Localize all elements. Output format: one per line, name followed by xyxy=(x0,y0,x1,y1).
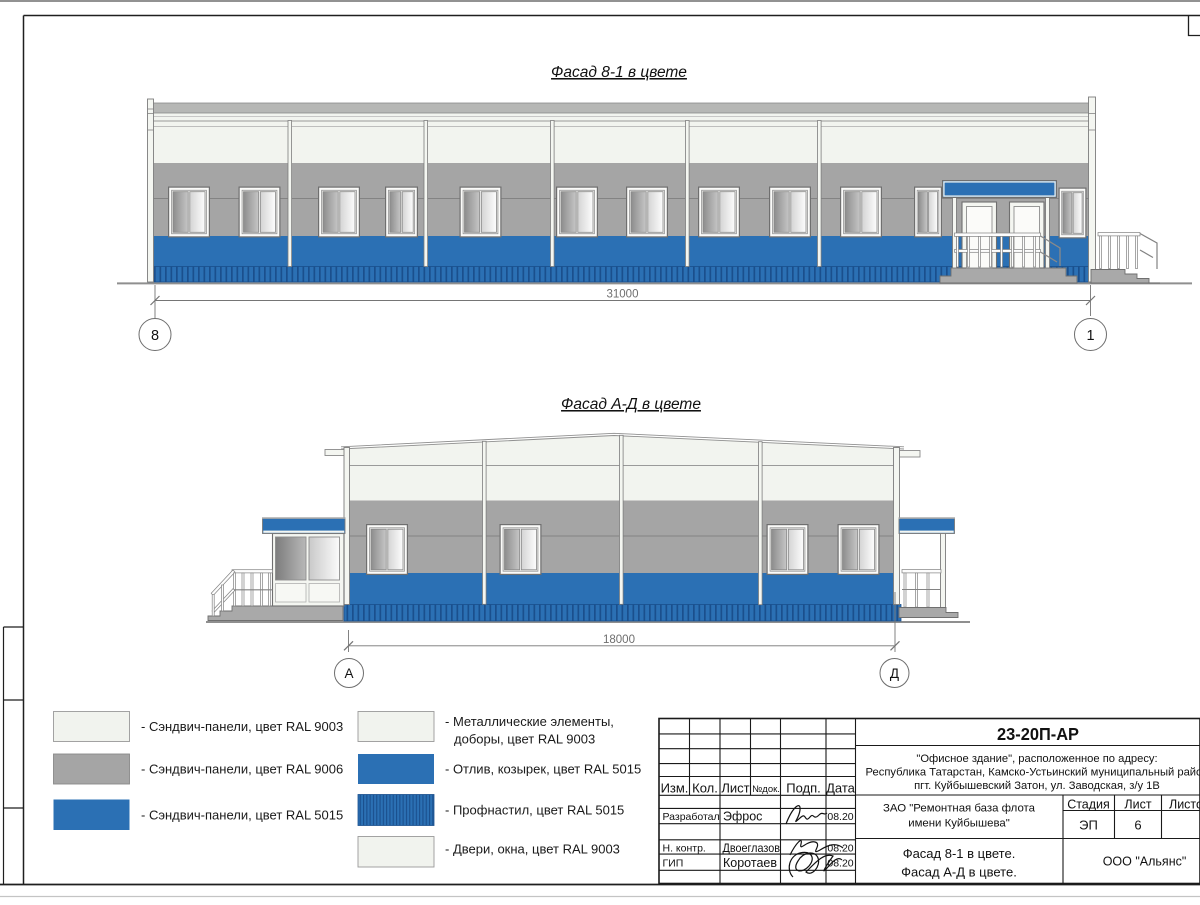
svg-text:- Профнастил, цвет RAL 5015: - Профнастил, цвет RAL 5015 xyxy=(445,803,624,818)
svg-text:23-20П-АР: 23-20П-АР xyxy=(997,724,1079,744)
svg-text:1: 1 xyxy=(1086,328,1094,344)
svg-text:ООО "Альянс": ООО "Альянс" xyxy=(1103,855,1187,869)
svg-text:имени Куйбышева": имени Куйбышева" xyxy=(908,818,1010,830)
svg-text:ГИП: ГИП xyxy=(663,858,684,870)
svg-text:Фасад 8-1 в цвете: Фасад 8-1 в цвете xyxy=(551,64,687,81)
svg-text:6: 6 xyxy=(1134,818,1141,833)
svg-text:доборы, цвет RAL 9003: доборы, цвет RAL 9003 xyxy=(454,732,595,747)
svg-text:Фасад 8-1 в цвете.: Фасад 8-1 в цвете. xyxy=(903,846,1016,861)
svg-text:Коротаев: Коротаев xyxy=(723,856,777,870)
svg-text:- Сэндвич-панели, цвет RAL 900: - Сэндвич-панели, цвет RAL 9006 xyxy=(141,762,343,777)
svg-text:Н. контр.: Н. контр. xyxy=(663,842,706,854)
svg-text:18000: 18000 xyxy=(603,634,635,646)
svg-text:Фасад А-Д в цвете: Фасад А-Д в цвете xyxy=(561,396,701,413)
svg-text:- Сэндвич-панели, цвет RAL 501: - Сэндвич-панели, цвет RAL 5015 xyxy=(141,808,343,823)
svg-text:А: А xyxy=(344,666,353,681)
svg-text:08.20: 08.20 xyxy=(827,843,853,855)
svg-text:Республика Татарстан, Камско-У: Республика Татарстан, Камско-Устьинский … xyxy=(866,766,1200,778)
svg-text:ЗАО "Ремонтная база флота: ЗАО "Ремонтная база флота xyxy=(883,803,1036,815)
svg-text:31000: 31000 xyxy=(607,289,639,301)
svg-text:Двоеглазов: Двоеглазов xyxy=(723,841,781,855)
svg-text:Кол.: Кол. xyxy=(692,780,718,795)
svg-text:- Двери, окна, цвет RAL 9003: - Двери, окна, цвет RAL 9003 xyxy=(445,842,620,857)
svg-text:Фасад А-Д в цвете.: Фасад А-Д в цвете. xyxy=(901,865,1017,880)
svg-text:8: 8 xyxy=(151,328,159,344)
svg-text:- Отлив, козырек, цвет RAL 501: - Отлив, козырек, цвет RAL 5015 xyxy=(445,762,641,777)
svg-text:Д: Д xyxy=(890,666,899,681)
svg-text:Подп.: Подп. xyxy=(786,780,821,795)
svg-text:Стадия: Стадия xyxy=(1067,798,1110,812)
svg-text:№док.: №док. xyxy=(752,784,780,795)
svg-text:Разработал: Разработал xyxy=(663,811,720,823)
svg-text:08.20: 08.20 xyxy=(827,811,853,823)
svg-text:Листо: Листо xyxy=(1169,798,1200,812)
svg-text:Изм.: Изм. xyxy=(661,780,689,795)
svg-text:Дата: Дата xyxy=(826,780,856,795)
svg-text:Лист: Лист xyxy=(721,780,749,795)
svg-text:Лист: Лист xyxy=(1124,798,1151,812)
svg-text:"Офисное здание", расположенно: "Офисное здание", расположенное по адрес… xyxy=(916,753,1157,765)
svg-text:- Сэндвич-панели, цвет RAL 900: - Сэндвич-панели, цвет RAL 9003 xyxy=(141,719,343,734)
svg-text:Эфрос: Эфрос xyxy=(723,810,762,824)
svg-text:ЭП: ЭП xyxy=(1079,818,1098,833)
svg-text:пгт. Куйбышевский Затон, ул. З: пгт. Куйбышевский Затон, ул. Заводская, … xyxy=(914,780,1160,792)
svg-text:- Металлические элементы,: - Металлические элементы, xyxy=(445,714,614,729)
